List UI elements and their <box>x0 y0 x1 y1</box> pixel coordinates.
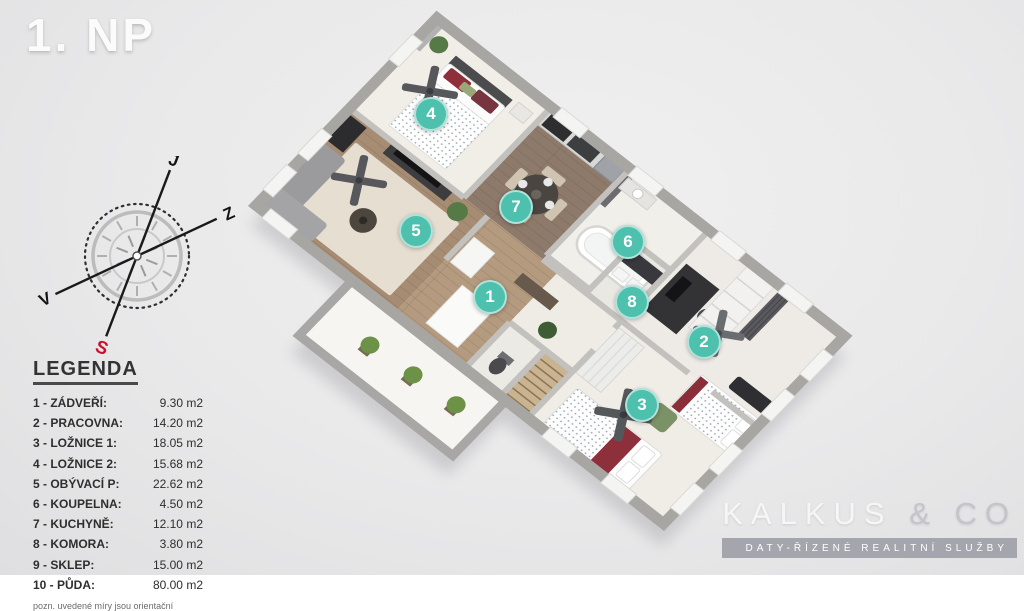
legend-room-area: 15.00 m2 <box>153 559 203 572</box>
legend-room-area: 4.50 m2 <box>160 498 203 511</box>
legend-room-label: 5 - OBÝVACÍ P: <box>33 478 119 491</box>
compass-rose: J S Z V <box>37 156 237 356</box>
legend-row: 10 - PŮDA:80.00 m2 <box>33 579 203 592</box>
room-marker-3: 3 <box>625 388 659 422</box>
legend-room-area: 3.80 m2 <box>160 538 203 551</box>
brand-ampersand: & <box>909 496 938 531</box>
brand-tagline: DATY-ŘÍZENÉ REALITNÍ SLUŽBY <box>722 538 1017 558</box>
legend-room-label: 3 - LOŽNICE 1: <box>33 437 117 450</box>
legend-room-area: 80.00 m2 <box>153 579 203 592</box>
legend-room-area: 22.62 m2 <box>153 478 203 491</box>
legend-room-label: 6 - KOUPELNA: <box>33 498 122 511</box>
legend-row: 2 - PRACOVNA:14.20 m2 <box>33 417 203 430</box>
legend-room-label: 8 - KOMORA: <box>33 538 109 551</box>
room-marker-5: 5 <box>399 214 433 248</box>
legend-row: 6 - KOUPELNA:4.50 m2 <box>33 498 203 511</box>
brand-primary: KALKUS <box>722 496 892 531</box>
legend-row: 4 - LOŽNICE 2:15.68 m2 <box>33 458 203 471</box>
legend-room-label: 9 - SKLEP: <box>33 559 94 572</box>
compass-south-label: J <box>166 156 182 171</box>
legend-room-label: 7 - KUCHYNĚ: <box>33 518 114 531</box>
legend-room-label: 1 - ZÁDVEŘÍ: <box>33 397 107 410</box>
legend-row: 8 - KOMORA:3.80 m2 <box>33 538 203 551</box>
legend-row: 1 - ZÁDVEŘÍ:9.30 m2 <box>33 397 203 410</box>
room-marker-8: 8 <box>615 285 649 319</box>
legend-room-label: 4 - LOŽNICE 2: <box>33 458 117 471</box>
room-marker-7: 7 <box>499 190 533 224</box>
legend-room-area: 18.05 m2 <box>153 437 203 450</box>
legend-room-area: 9.30 m2 <box>160 397 203 410</box>
legend-row: 7 - KUCHYNĚ:12.10 m2 <box>33 518 203 531</box>
legend-room-label: 10 - PŮDA: <box>33 579 95 592</box>
brand-name: KALKUS & CO <box>722 496 1017 532</box>
brand-logo: KALKUS & CO DATY-ŘÍZENÉ REALITNÍ SLUŽBY <box>722 496 1017 558</box>
compass-north-label: S <box>93 336 111 356</box>
legend-row: 5 - OBÝVACÍ P:22.62 m2 <box>33 478 203 491</box>
legend-note: pozn. uvedené míry jsou orientační <box>33 601 203 611</box>
legend-row: 9 - SKLEP:15.00 m2 <box>33 559 203 572</box>
floorplan-page: 1. NP J S Z V 12345678 <box>0 0 1024 575</box>
legend-room-area: 15.68 m2 <box>153 458 203 471</box>
legend-panel: LEGENDA 1 - ZÁDVEŘÍ:9.30 m22 - PRACOVNA:… <box>33 358 203 611</box>
compass-east-label: V <box>37 288 55 310</box>
room-marker-6: 6 <box>611 225 645 259</box>
room-marker-1: 1 <box>473 280 507 314</box>
brand-secondary: CO <box>955 496 1018 531</box>
room-marker-4: 4 <box>414 97 448 131</box>
legend-heading: LEGENDA <box>33 358 138 385</box>
legend-row: 3 - LOŽNICE 1:18.05 m2 <box>33 437 203 450</box>
legend-room-area: 14.20 m2 <box>153 417 203 430</box>
legend-rows: 1 - ZÁDVEŘÍ:9.30 m22 - PRACOVNA:14.20 m2… <box>33 397 203 591</box>
page-title: 1. NP <box>26 8 156 62</box>
room-marker-2: 2 <box>687 325 721 359</box>
legend-room-label: 2 - PRACOVNA: <box>33 417 123 430</box>
compass-west-label: Z <box>220 203 237 225</box>
legend-room-area: 12.10 m2 <box>153 518 203 531</box>
compass-hub <box>133 252 141 260</box>
